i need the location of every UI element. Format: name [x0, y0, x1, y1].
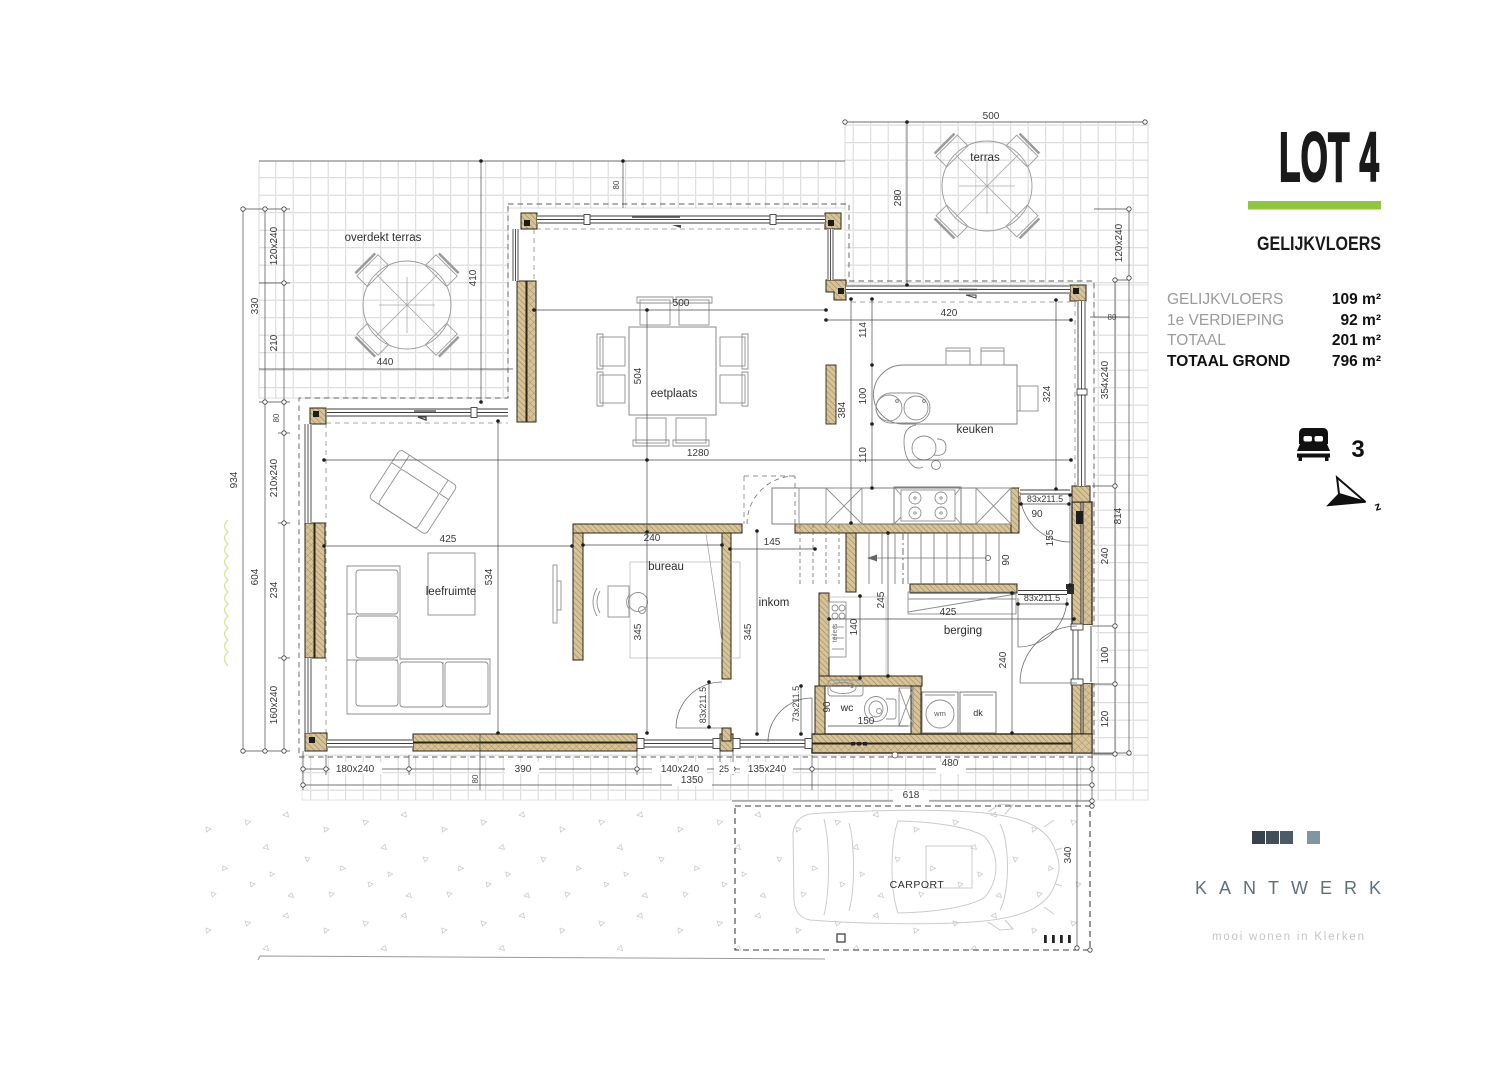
svg-text:796 m²: 796 m²	[1332, 353, 1381, 370]
svg-text:80: 80	[1108, 313, 1117, 322]
svg-text:1350: 1350	[681, 775, 704, 786]
svg-text:100: 100	[858, 387, 869, 404]
svg-text:410: 410	[468, 269, 479, 286]
svg-text:345: 345	[633, 623, 644, 640]
svg-text:354x240: 354x240	[1100, 360, 1111, 399]
svg-text:814: 814	[1113, 507, 1124, 524]
svg-text:inkom: inkom	[759, 597, 790, 609]
svg-text:150: 150	[858, 716, 875, 727]
svg-text:210: 210	[269, 334, 280, 351]
svg-text:140: 140	[849, 618, 860, 635]
svg-text:1280: 1280	[687, 448, 710, 459]
svg-text:83x211.5: 83x211.5	[1027, 494, 1063, 504]
svg-text:330: 330	[250, 297, 261, 314]
svg-text:overdekt terras: overdekt terras	[345, 232, 422, 244]
svg-text:345: 345	[743, 623, 754, 640]
svg-text:425: 425	[440, 534, 457, 545]
svg-text:240: 240	[644, 533, 661, 544]
svg-text:504: 504	[633, 367, 644, 384]
svg-text:110: 110	[858, 447, 869, 463]
svg-text:180x240: 180x240	[336, 764, 375, 775]
svg-text:280: 280	[893, 189, 904, 206]
svg-text:210x240: 210x240	[269, 458, 280, 497]
svg-text:120: 120	[1100, 710, 1111, 727]
svg-text:1e VERDIEPING: 1e VERDIEPING	[1167, 312, 1284, 329]
svg-text:eetplaats: eetplaats	[651, 388, 698, 400]
svg-text:90: 90	[1001, 554, 1012, 566]
svg-text:135x240: 135x240	[748, 764, 787, 775]
svg-text:berging: berging	[944, 625, 982, 637]
svg-text:TOTAAL: TOTAAL	[1167, 332, 1226, 349]
svg-text:bureau: bureau	[648, 561, 684, 573]
svg-text:234: 234	[269, 581, 280, 598]
svg-text:480: 480	[942, 758, 959, 769]
svg-text:teilers: teilers	[832, 623, 839, 642]
svg-text:155: 155	[1045, 529, 1056, 546]
svg-text:120x240: 120x240	[1114, 223, 1125, 262]
svg-text:3: 3	[1351, 436, 1364, 463]
svg-text:160x240: 160x240	[269, 685, 280, 724]
svg-text:114: 114	[858, 322, 869, 338]
svg-text:390: 390	[515, 764, 532, 775]
svg-text:100: 100	[1100, 646, 1111, 663]
svg-text:GELIJKVLOERS: GELIJKVLOERS	[1257, 234, 1381, 255]
svg-text:83x211.5: 83x211.5	[1024, 593, 1060, 603]
svg-text:324: 324	[1042, 385, 1053, 402]
svg-text:420: 420	[941, 308, 958, 319]
svg-text:TOTAAL GROND: TOTAAL GROND	[1167, 353, 1290, 370]
svg-text:dk: dk	[973, 708, 983, 718]
svg-text:90: 90	[1031, 509, 1043, 520]
svg-text:GELIJKVLOERS: GELIJKVLOERS	[1167, 291, 1283, 308]
svg-text:145: 145	[764, 537, 781, 548]
svg-text:wc: wc	[840, 702, 854, 714]
svg-text:80: 80	[272, 413, 281, 422]
svg-text:120x240: 120x240	[269, 226, 280, 265]
svg-text:CARPORT: CARPORT	[890, 879, 945, 891]
svg-text:934: 934	[229, 471, 240, 488]
svg-text:618: 618	[903, 790, 920, 801]
svg-text:500: 500	[673, 298, 690, 309]
svg-text:wm: wm	[933, 709, 946, 718]
svg-text:73x211.5: 73x211.5	[791, 686, 801, 722]
svg-text:500: 500	[983, 111, 1000, 122]
svg-text:80: 80	[612, 180, 621, 189]
svg-text:340: 340	[1063, 846, 1074, 863]
svg-text:92 m²: 92 m²	[1341, 312, 1382, 329]
svg-text:201 m²: 201 m²	[1332, 332, 1381, 349]
svg-text:mooi wonen in Klerken: mooi wonen in Klerken	[1212, 931, 1364, 943]
svg-text:140x240: 140x240	[661, 764, 700, 775]
svg-text:534: 534	[484, 568, 495, 585]
svg-text:440: 440	[377, 357, 394, 368]
svg-text:604: 604	[250, 568, 261, 585]
svg-text:240: 240	[1100, 547, 1111, 564]
svg-text:245: 245	[876, 591, 887, 608]
svg-text:LOT 4: LOT 4	[1279, 118, 1379, 196]
svg-text:109 m²: 109 m²	[1332, 291, 1381, 308]
svg-text:keuken: keuken	[956, 424, 993, 436]
svg-text:240: 240	[998, 651, 1009, 668]
svg-text:384: 384	[837, 401, 848, 418]
svg-text:425: 425	[940, 607, 957, 618]
svg-text:90: 90	[822, 701, 833, 713]
svg-text:terras: terras	[970, 152, 1000, 164]
svg-text:83x211.5: 83x211.5	[698, 687, 708, 723]
svg-text:leefruimte: leefruimte	[426, 586, 477, 598]
svg-text:25: 25	[719, 764, 729, 774]
svg-text:80: 80	[471, 774, 480, 783]
